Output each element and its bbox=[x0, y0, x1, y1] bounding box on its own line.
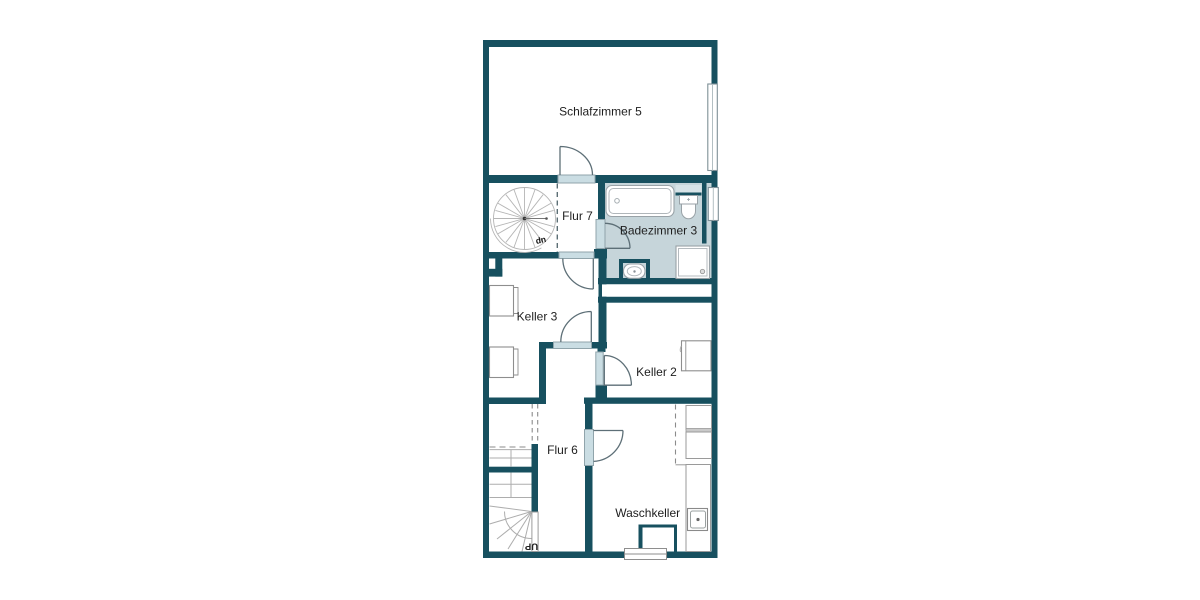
svg-text:Badezimmer 3: Badezimmer 3 bbox=[620, 224, 698, 238]
svg-text:dn: dn bbox=[535, 234, 547, 246]
svg-text:Flur 7: Flur 7 bbox=[562, 209, 593, 223]
svg-text:UP: UP bbox=[524, 541, 538, 552]
svg-text:Schlafzimmer 5: Schlafzimmer 5 bbox=[559, 104, 642, 118]
svg-text:Keller 3: Keller 3 bbox=[517, 309, 558, 323]
svg-text:Flur 6: Flur 6 bbox=[547, 443, 578, 457]
svg-text:Waschkeller: Waschkeller bbox=[615, 506, 680, 520]
svg-text:Keller 2: Keller 2 bbox=[636, 365, 677, 379]
